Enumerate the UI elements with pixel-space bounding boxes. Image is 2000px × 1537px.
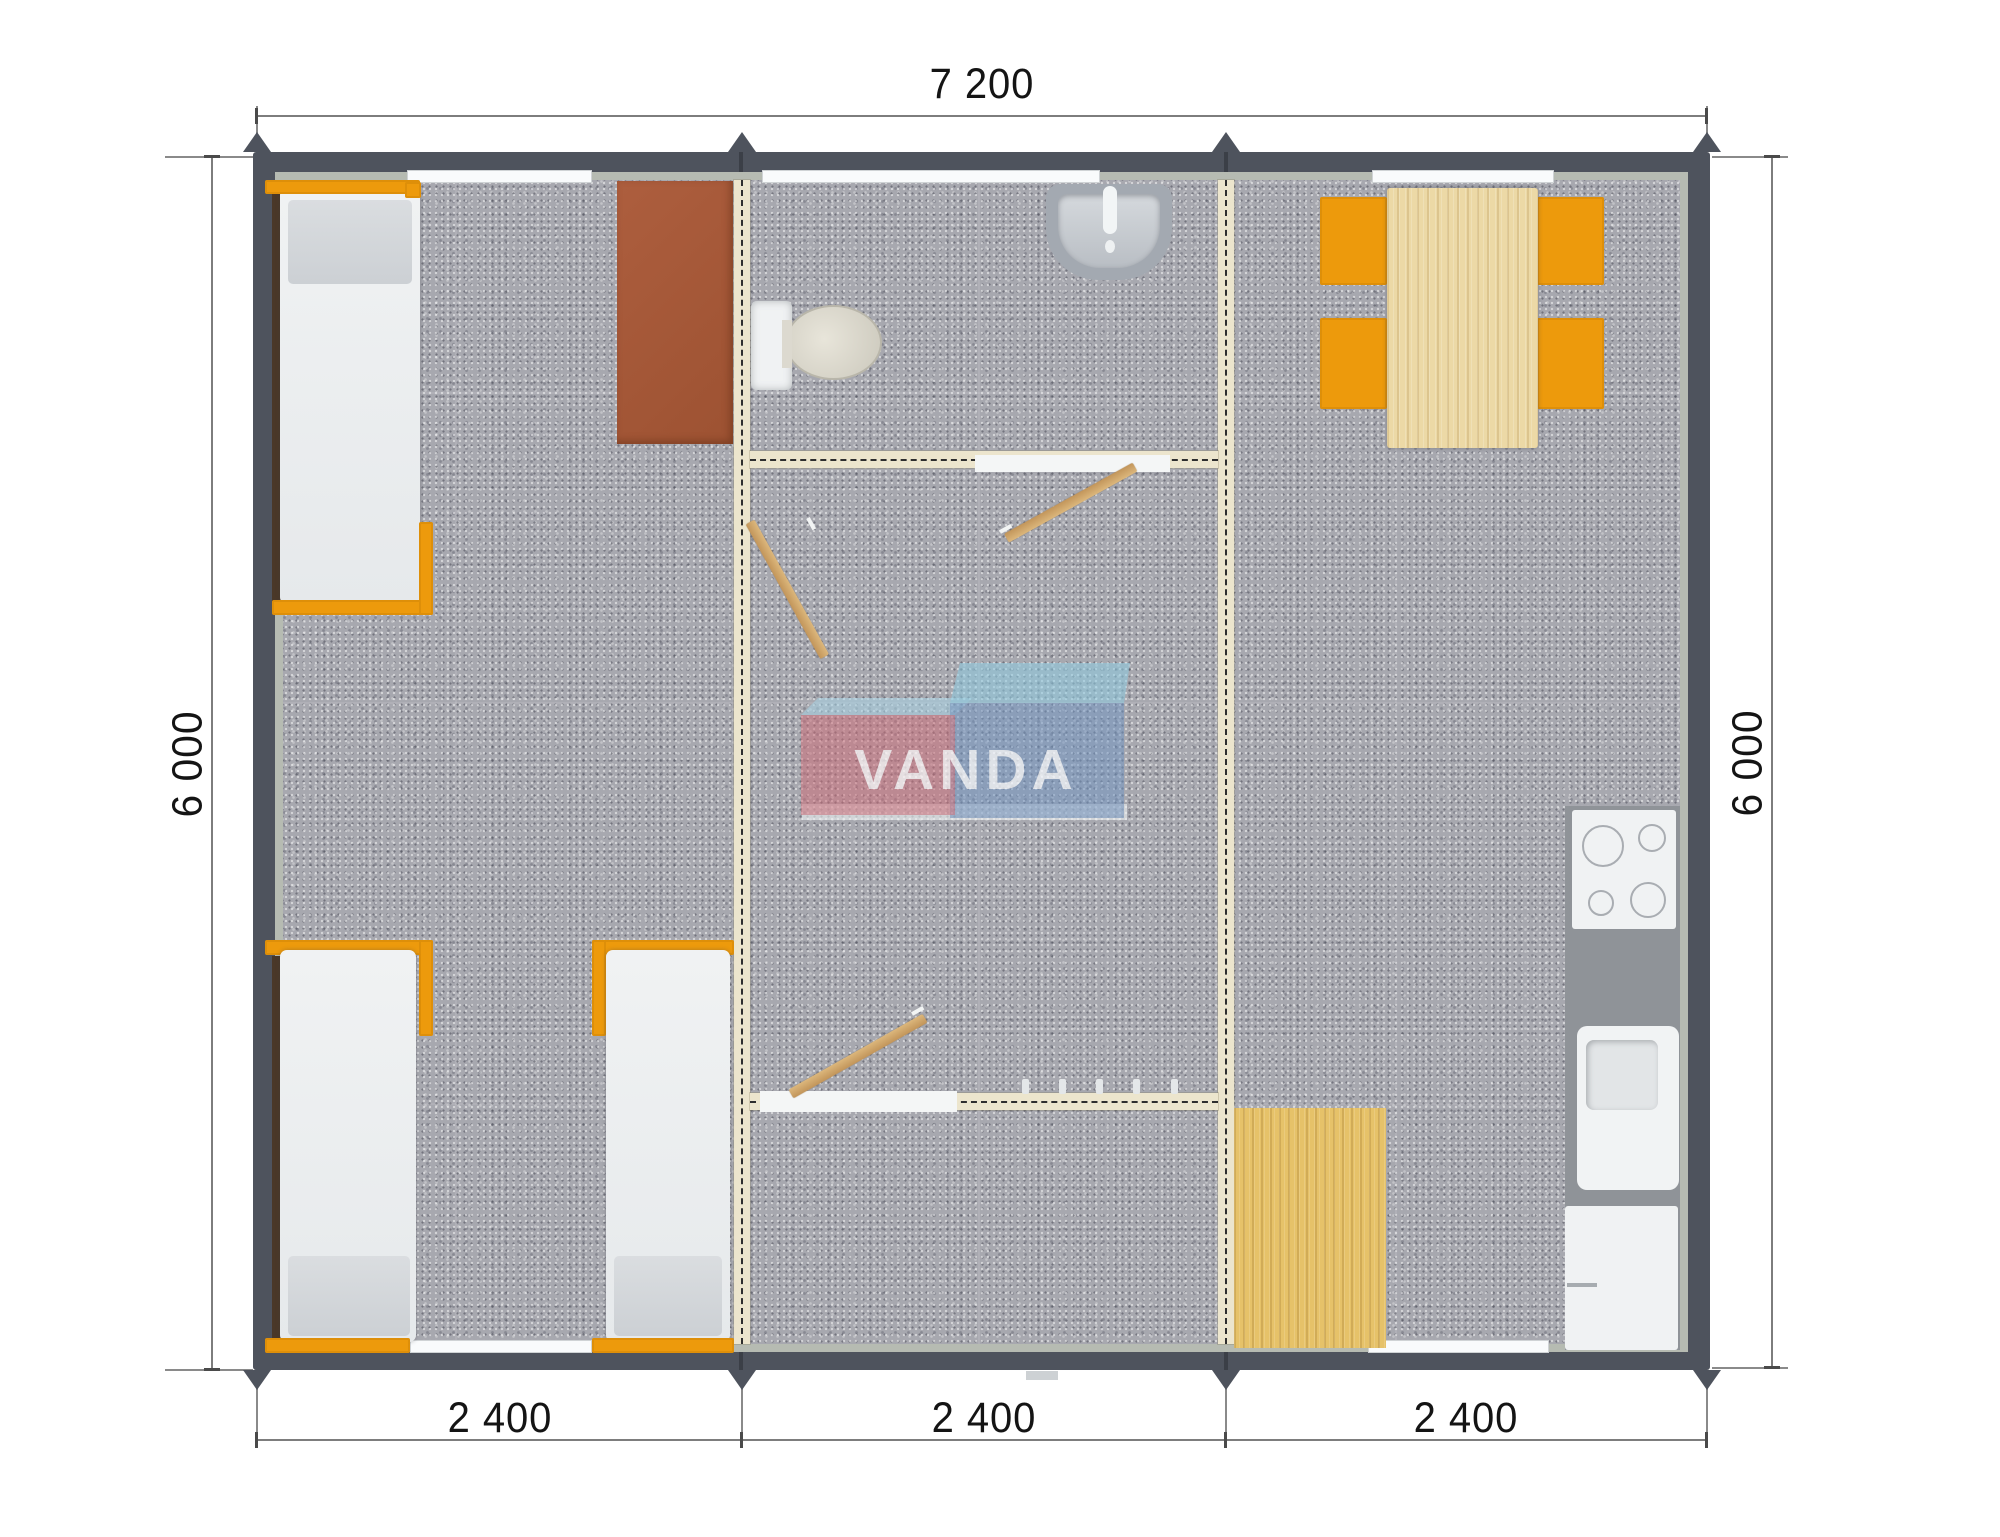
entry-step bbox=[1026, 1371, 1058, 1380]
burner-icon bbox=[1588, 890, 1614, 916]
chair bbox=[1320, 318, 1387, 409]
door-opening-upper bbox=[975, 455, 1170, 472]
wall-hook-icon bbox=[1022, 1079, 1029, 1094]
wall-hook-icon bbox=[1096, 1079, 1103, 1094]
dimension-tick bbox=[1764, 1366, 1780, 1369]
bed-pillow bbox=[288, 200, 412, 284]
kitchen-sink-basin bbox=[1586, 1040, 1658, 1110]
bed-frame-bracket bbox=[419, 522, 433, 615]
bed-frame-bar bbox=[265, 180, 420, 194]
window-bottom-right-room bbox=[1368, 1340, 1549, 1353]
joint-arrow-icon bbox=[728, 1370, 756, 1390]
window-top-dining bbox=[1372, 170, 1554, 183]
module-joint bbox=[739, 152, 743, 174]
module-joint bbox=[1224, 152, 1228, 174]
wall-hook-icon bbox=[1171, 1079, 1178, 1094]
dimension-label-left: 6 000 bbox=[164, 711, 213, 818]
toilet-seat-hinge bbox=[782, 320, 792, 368]
dimension-label-bottom-3: 2 400 bbox=[1373, 1394, 1559, 1443]
chair bbox=[1320, 197, 1387, 285]
drain-icon bbox=[1105, 240, 1115, 253]
bed-frame-bar bbox=[265, 1338, 410, 1353]
partition-wall-centerline bbox=[741, 180, 743, 1344]
dimension-label-bottom-1: 2 400 bbox=[407, 1394, 593, 1443]
faucet-icon bbox=[1103, 186, 1117, 234]
partition-wall-centerline bbox=[1225, 180, 1227, 1344]
window-bottom-left-room bbox=[410, 1340, 592, 1353]
dimension-label-top: 7 200 bbox=[889, 60, 1075, 109]
dimension-label-right: 6 000 bbox=[1724, 710, 1773, 817]
kitchen-cabinet bbox=[1565, 1206, 1678, 1350]
floor-plan-canvas: 7 200 6 000 6 000 2 400 2 400 2 400 bbox=[0, 0, 2000, 1537]
carpet-seam bbox=[455, 180, 457, 1344]
dining-table bbox=[1387, 188, 1538, 448]
door-opening-lower bbox=[760, 1091, 957, 1112]
toilet-bowl bbox=[785, 305, 882, 380]
wood-floor-mat bbox=[1234, 1108, 1386, 1348]
bed-frame-bar bbox=[272, 600, 433, 615]
cabinet-handle bbox=[1567, 1283, 1597, 1287]
dimension-tick bbox=[204, 1368, 220, 1371]
burner-icon bbox=[1582, 825, 1624, 867]
chair bbox=[1537, 197, 1604, 285]
joint-arrow-icon bbox=[728, 132, 756, 152]
bed-pillow bbox=[288, 1256, 410, 1336]
dimension-line-top bbox=[257, 115, 1707, 117]
joint-arrow-icon bbox=[1212, 1370, 1240, 1390]
wall-hook-icon bbox=[1059, 1079, 1066, 1094]
bed-pillow bbox=[614, 1256, 722, 1336]
burner-icon bbox=[1630, 882, 1666, 918]
burner-icon bbox=[1638, 824, 1666, 852]
dimension-tick bbox=[255, 108, 258, 124]
chair bbox=[1537, 318, 1604, 409]
dimension-tick bbox=[1224, 1432, 1227, 1448]
dimension-label-bottom-2: 2 400 bbox=[891, 1394, 1077, 1443]
dimension-tick bbox=[1705, 108, 1708, 124]
dimension-tick bbox=[204, 155, 220, 158]
dimension-tick bbox=[740, 1432, 743, 1448]
bed-frame-bracket bbox=[419, 940, 433, 1036]
watermark-text: VANDA bbox=[854, 738, 1077, 802]
joint-arrow-icon bbox=[243, 1370, 271, 1390]
joint-arrow-icon bbox=[1693, 132, 1721, 152]
bed-frame-bracket bbox=[405, 182, 421, 198]
window-top-bathroom bbox=[762, 170, 1100, 183]
bed-frame-bar bbox=[592, 1338, 734, 1353]
bed-frame-bracket bbox=[592, 940, 606, 1036]
dimension-tick bbox=[255, 1432, 258, 1448]
joint-arrow-icon bbox=[1693, 1370, 1721, 1390]
dimension-tick bbox=[1764, 155, 1780, 158]
joint-arrow-icon bbox=[1212, 132, 1240, 152]
joint-arrow-icon bbox=[243, 132, 271, 152]
vanda-watermark-logo: VANDA bbox=[800, 658, 1140, 833]
dimension-tick bbox=[1705, 1432, 1708, 1448]
window-top-left-room bbox=[407, 170, 592, 183]
wall-hook-icon bbox=[1133, 1079, 1140, 1094]
brown-table bbox=[617, 181, 733, 444]
